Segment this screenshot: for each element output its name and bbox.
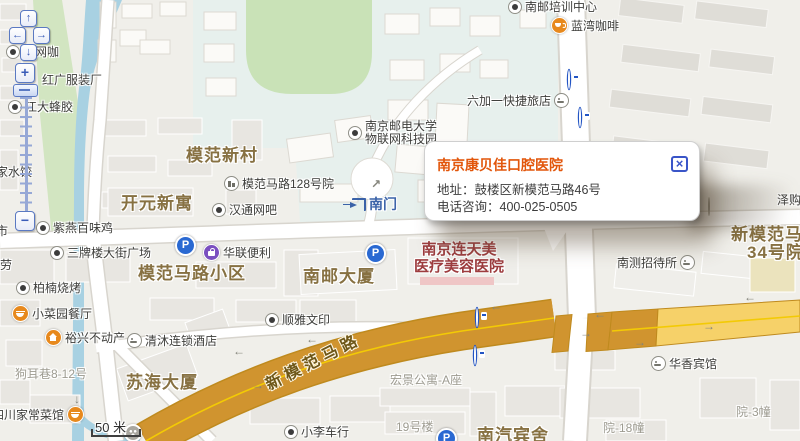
- house-icon: [45, 329, 62, 346]
- poi-hongguang[interactable]: 红广服装厂: [42, 73, 102, 87]
- lane-arrow-icon: ↓: [74, 392, 80, 406]
- poi-sanpailou[interactable]: 三牌楼大街广场: [50, 246, 151, 260]
- zoom-in-button[interactable]: +: [15, 63, 35, 83]
- dot-icon: [50, 246, 64, 260]
- poi-label: 华香宾馆: [669, 357, 717, 371]
- poi-label: 三牌楼大街广场: [67, 246, 151, 260]
- district-compound34-line2: 34号院: [747, 244, 800, 262]
- poi-yard128[interactable]: 模范马路128号院: [224, 176, 334, 191]
- label-building19: 19号楼: [396, 418, 433, 435]
- poi-label: 超市: [0, 224, 8, 238]
- poi-jiangda[interactable]: 江大蜂胶: [8, 100, 73, 114]
- clinic-label-line1: 南京连天美: [406, 241, 512, 258]
- district-mofan-xincun: 模范新村: [186, 147, 258, 165]
- building-icon: [224, 176, 239, 191]
- parking-icon[interactable]: P: [365, 243, 386, 264]
- hotel-icon: [651, 356, 666, 371]
- poi-peixun[interactable]: 南邮培训中心: [508, 0, 597, 14]
- popup-tail: [540, 218, 576, 251]
- dot-icon: [212, 203, 226, 217]
- dot-icon: [508, 0, 522, 14]
- dot-icon: [6, 45, 20, 59]
- poi-label: 裕兴不动产: [65, 331, 125, 345]
- poi-sichuan[interactable]: 四川家常菜馆: [0, 406, 84, 423]
- poi-label: 六加一快捷旅店: [467, 94, 551, 108]
- lane-arrow-icon: →: [634, 335, 646, 349]
- dot-icon: [36, 221, 50, 235]
- poi-label: 江大蜂胶: [25, 100, 73, 114]
- district-kaiyuan-xinyu: 开元新寓: [121, 195, 193, 213]
- poi-huaxiang[interactable]: 华香宾馆: [651, 356, 717, 371]
- label-gouerxiang: 狗耳巷8-12号: [15, 365, 87, 382]
- hotel-icon: [554, 93, 569, 108]
- zoom-slider-handle[interactable]: [13, 84, 38, 97]
- poi-liujiayi[interactable]: 六加一快捷旅店: [467, 93, 569, 108]
- popup-address-value: 鼓楼区新模范马路46号: [475, 183, 601, 197]
- poi-label: 小菜园餐厅: [32, 307, 92, 321]
- label-yard3: 院-3幢: [736, 403, 771, 420]
- poi-shunya[interactable]: 顺雅文印: [265, 313, 330, 327]
- building-yellow: [750, 258, 795, 292]
- poi-nanmen[interactable]: 南门: [352, 197, 397, 211]
- poi-label: 四川家常菜馆: [0, 408, 64, 422]
- poi-label: 华联便利: [223, 246, 271, 260]
- poi-label: 清沐连锁酒店: [145, 334, 217, 348]
- poi-label: 南门: [369, 197, 397, 211]
- popup-phone-label: 电话咨询：: [437, 200, 500, 214]
- poi-label: 南测招待所: [617, 256, 677, 270]
- poi-xiaocaiyuan[interactable]: 小菜园餐厅: [12, 305, 92, 322]
- poi-hantong[interactable]: 汉通网吧: [212, 203, 277, 217]
- label-hongjing: 宏景公寓-A座: [390, 371, 462, 388]
- hotel-icon: [680, 255, 695, 270]
- popup-address-label: 地址：: [437, 183, 475, 197]
- poi-lanwan[interactable]: 蓝湾咖啡: [551, 17, 619, 34]
- poi-nance[interactable]: 南测招待所: [617, 255, 695, 270]
- lane-arrow-icon: ↗: [371, 177, 381, 191]
- district-suhai-dasha: 苏海大厦: [126, 374, 198, 392]
- bus-stop-icon[interactable]: [476, 308, 478, 327]
- poi-xiaoli[interactable]: 小李车行: [284, 425, 349, 439]
- restaurant-icon: [67, 406, 84, 423]
- dot-icon: [16, 281, 30, 295]
- lane-arrow-icon: ←: [490, 299, 502, 313]
- clinic-highlight: [420, 277, 494, 285]
- coffee-icon: [551, 17, 568, 34]
- district-nanyou-dasha: 南邮大厦: [303, 268, 375, 286]
- poi-njupt[interactable]: 南京邮电大学 物联网科技园: [348, 120, 437, 146]
- pan-up-button[interactable]: ↑: [20, 10, 37, 27]
- clinic-label: 南京连天美 医疗美容医院: [406, 241, 512, 275]
- poi-ziyan[interactable]: 紫燕百味鸡: [36, 221, 113, 235]
- dot-icon: [284, 425, 298, 439]
- poi-label: 南邮培训中心: [525, 0, 597, 14]
- hotel-icon: [127, 333, 142, 348]
- popup-phone-line: 电话咨询：400-025-0505: [437, 199, 685, 216]
- zoom-slider-track[interactable]: [20, 97, 32, 211]
- shopping-bag-icon: [203, 244, 220, 261]
- district-nanqi-binshe: 南汽宾舍: [477, 427, 549, 441]
- popup-title: 南京康贝佳口腔医院: [437, 155, 685, 175]
- close-icon[interactable]: ×: [671, 156, 688, 172]
- poi-chaoshi[interactable]: 超市: [0, 224, 8, 238]
- bus-stop-icon[interactable]: [474, 346, 476, 365]
- poi-label: 柏楠烧烤: [33, 281, 81, 295]
- poi-label: 小李车行: [301, 425, 349, 439]
- poi-bainan[interactable]: 柏楠烧烤: [16, 281, 81, 295]
- zoom-out-button[interactable]: −: [15, 211, 35, 231]
- lane-arrow-icon: ←: [744, 290, 756, 304]
- pan-right-button[interactable]: →: [33, 27, 50, 44]
- dot-icon: [265, 313, 279, 327]
- dot-icon: [348, 126, 362, 140]
- poi-label: 劳: [0, 258, 12, 272]
- poi-label: 红广服装厂: [42, 73, 102, 87]
- label-yard18: 院-18幢: [603, 419, 644, 436]
- lane-arrow-icon: ←: [594, 307, 606, 321]
- district-compound34: 新模范马路 34号院: [731, 226, 800, 262]
- poi-yuxing[interactable]: 裕兴不动产: [45, 329, 125, 346]
- lane-arrow-icon: →: [252, 378, 264, 392]
- poi-hualian[interactable]: 华联便利: [203, 244, 271, 261]
- clinic-label-line2: 医疗美容医院: [406, 258, 512, 275]
- poi-label: 顺雅文印: [282, 313, 330, 327]
- lane-arrow-icon: →: [703, 319, 715, 333]
- poi-label: 模范马路128号院: [242, 177, 334, 191]
- green-field: [246, 0, 372, 94]
- pan-down-button[interactable]: ↓: [20, 44, 37, 61]
- parking-icon[interactable]: P: [175, 235, 196, 256]
- restaurant-icon: [12, 305, 29, 322]
- lane-arrow-icon: ←: [233, 344, 245, 358]
- district-mofan-malu-xiaoqu: 模范马路小区: [138, 265, 246, 283]
- info-popup: 南京康贝佳口腔医院 地址：鼓楼区新模范马路46号 电话咨询：400-025-05…: [424, 141, 700, 221]
- lane-arrow-icon: →: [580, 326, 592, 340]
- poi-lao[interactable]: 劳: [0, 258, 12, 272]
- bus-stop-icon[interactable]: [568, 70, 570, 89]
- poi-label: 蓝湾咖啡: [571, 19, 619, 33]
- bus-stop-icon[interactable]: [579, 108, 581, 127]
- poi-label: 汉通网吧: [229, 203, 277, 217]
- gate-icon: [352, 198, 366, 211]
- popup-phone-value: 400-025-0505: [500, 200, 578, 214]
- poi-qingmu[interactable]: 清沐连锁酒店: [127, 333, 217, 348]
- popup-shadow: [690, 185, 800, 229]
- scale-bar: [91, 429, 141, 437]
- poi-label: 紫燕百味鸡: [53, 221, 113, 235]
- pan-left-button[interactable]: ←: [9, 27, 26, 44]
- map-canvas[interactable]: 南邮培训中心 蓝湾咖啡 六加一快捷旅店 南京邮电大学 物联网科技园 模范马路12…: [0, 0, 800, 441]
- popup-address-line: 地址：鼓楼区新模范马路46号: [437, 182, 685, 199]
